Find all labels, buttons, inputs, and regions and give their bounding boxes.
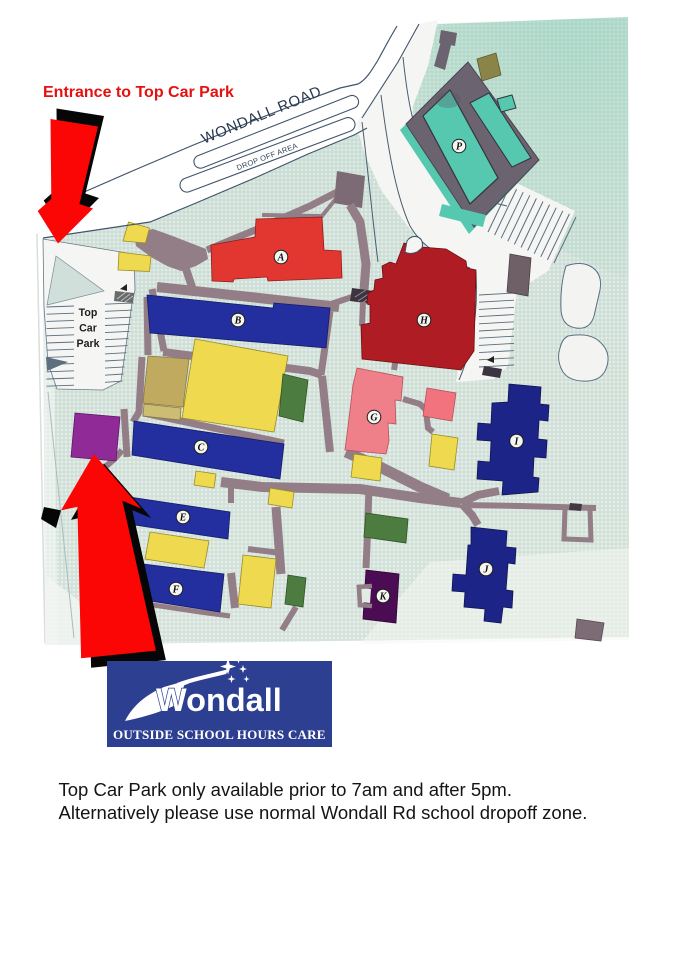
svg-text:Top: Top — [79, 307, 98, 319]
svg-text:Car: Car — [79, 323, 97, 335]
svg-text:K: K — [379, 592, 388, 603]
svg-text:Park: Park — [77, 338, 100, 350]
svg-text:Top Car Park only available pr: Top Car Park only available prior to 7am… — [59, 779, 512, 800]
svg-text:H: H — [419, 316, 429, 327]
svg-text:G: G — [370, 413, 378, 424]
svg-text:E: E — [179, 513, 187, 524]
svg-text:Alternatively please use norma: Alternatively please use normal Wondall … — [59, 802, 588, 823]
svg-text:P: P — [456, 142, 463, 153]
svg-text:B: B — [234, 316, 242, 327]
svg-text:Wondall: Wondall — [156, 682, 282, 718]
svg-text:A: A — [277, 253, 285, 264]
svg-text:F: F — [172, 585, 180, 596]
svg-text:J: J — [483, 565, 490, 576]
svg-text:OUTSIDE SCHOOL HOURS CARE: OUTSIDE SCHOOL HOURS CARE — [113, 727, 326, 742]
svg-text:C: C — [198, 443, 205, 454]
svg-text:Entrance to Top Car Park: Entrance to Top Car Park — [43, 84, 234, 101]
